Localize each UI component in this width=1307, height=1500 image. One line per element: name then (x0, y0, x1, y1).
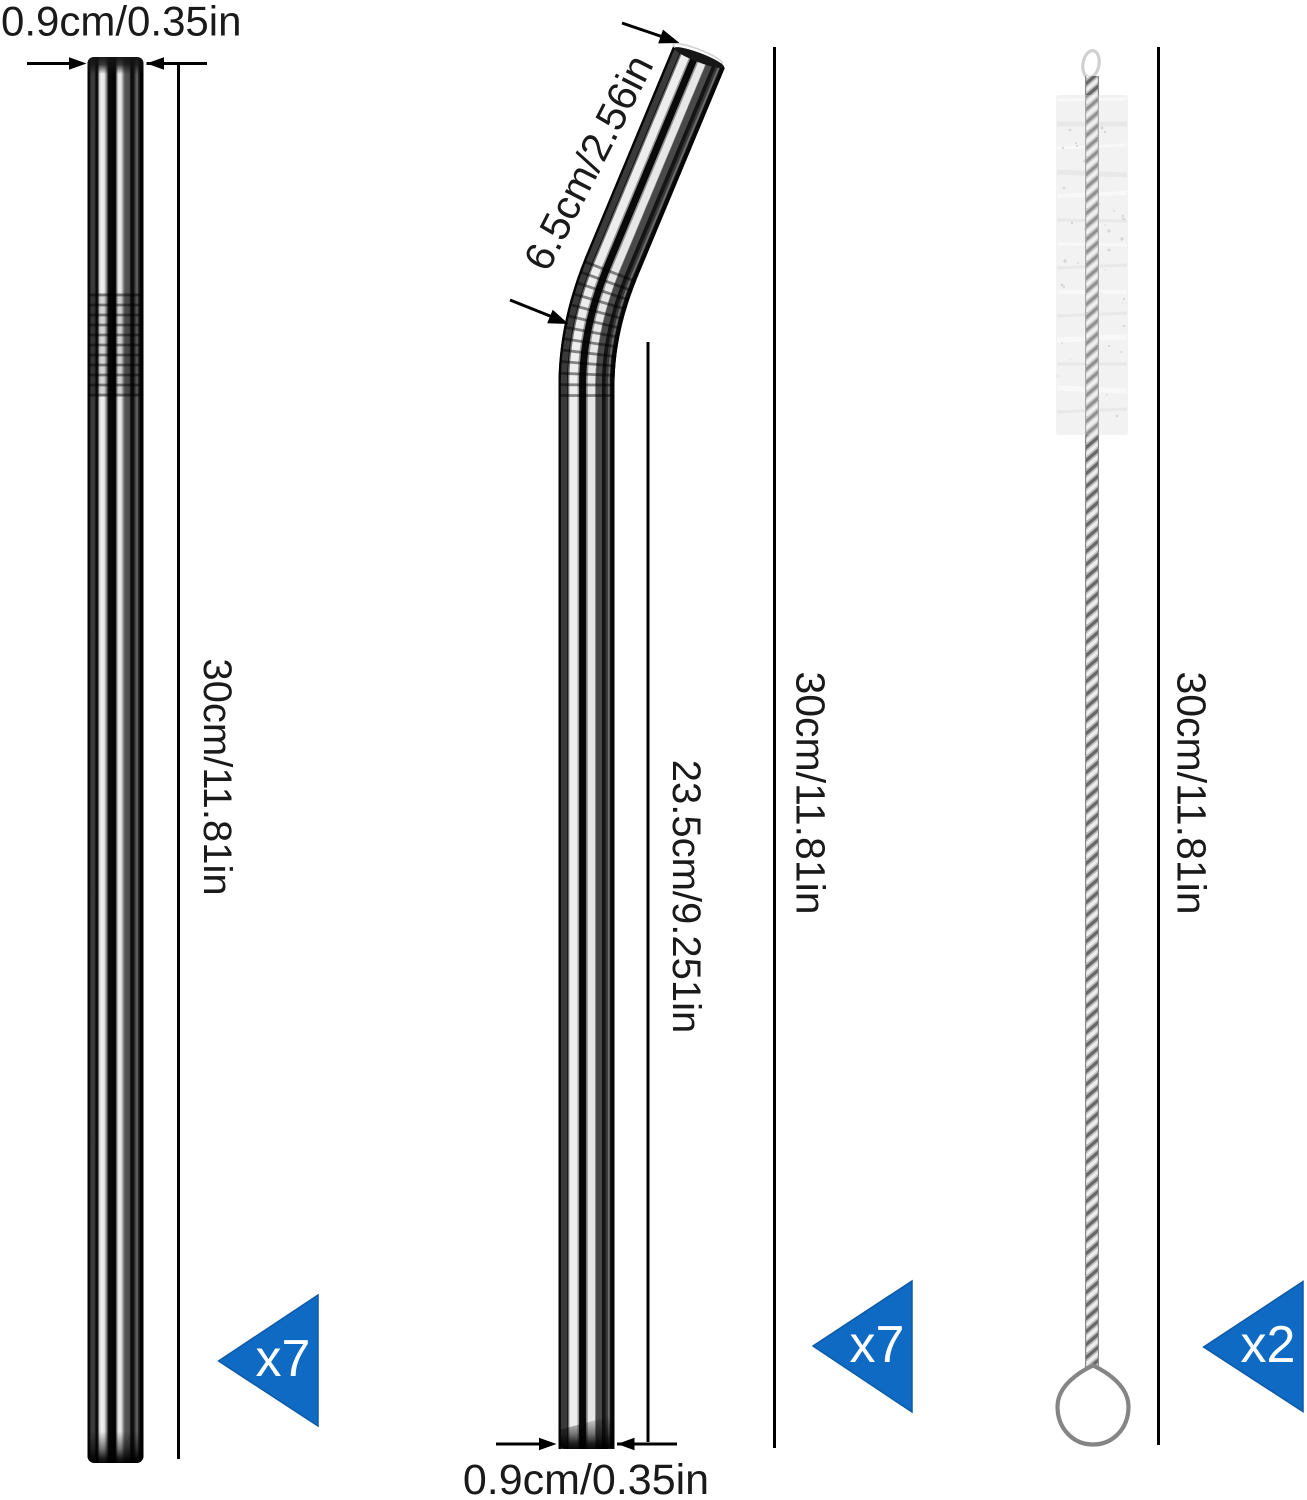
svg-text:x7: x7 (850, 1316, 905, 1374)
svg-text:23.5cm/9.251in: 23.5cm/9.251in (664, 760, 708, 1034)
svg-text:30cm/11.81in: 30cm/11.81in (195, 658, 239, 895)
svg-text:x2: x2 (1241, 1316, 1296, 1374)
svg-text:30cm/11.81in: 30cm/11.81in (788, 671, 834, 914)
svg-text:30cm/11.81in: 30cm/11.81in (1169, 671, 1215, 914)
svg-text:x7: x7 (256, 1330, 311, 1388)
svg-text:0.9cm/0.35in: 0.9cm/0.35in (1, 0, 241, 45)
svg-text:0.9cm/0.35in: 0.9cm/0.35in (463, 1456, 709, 1500)
